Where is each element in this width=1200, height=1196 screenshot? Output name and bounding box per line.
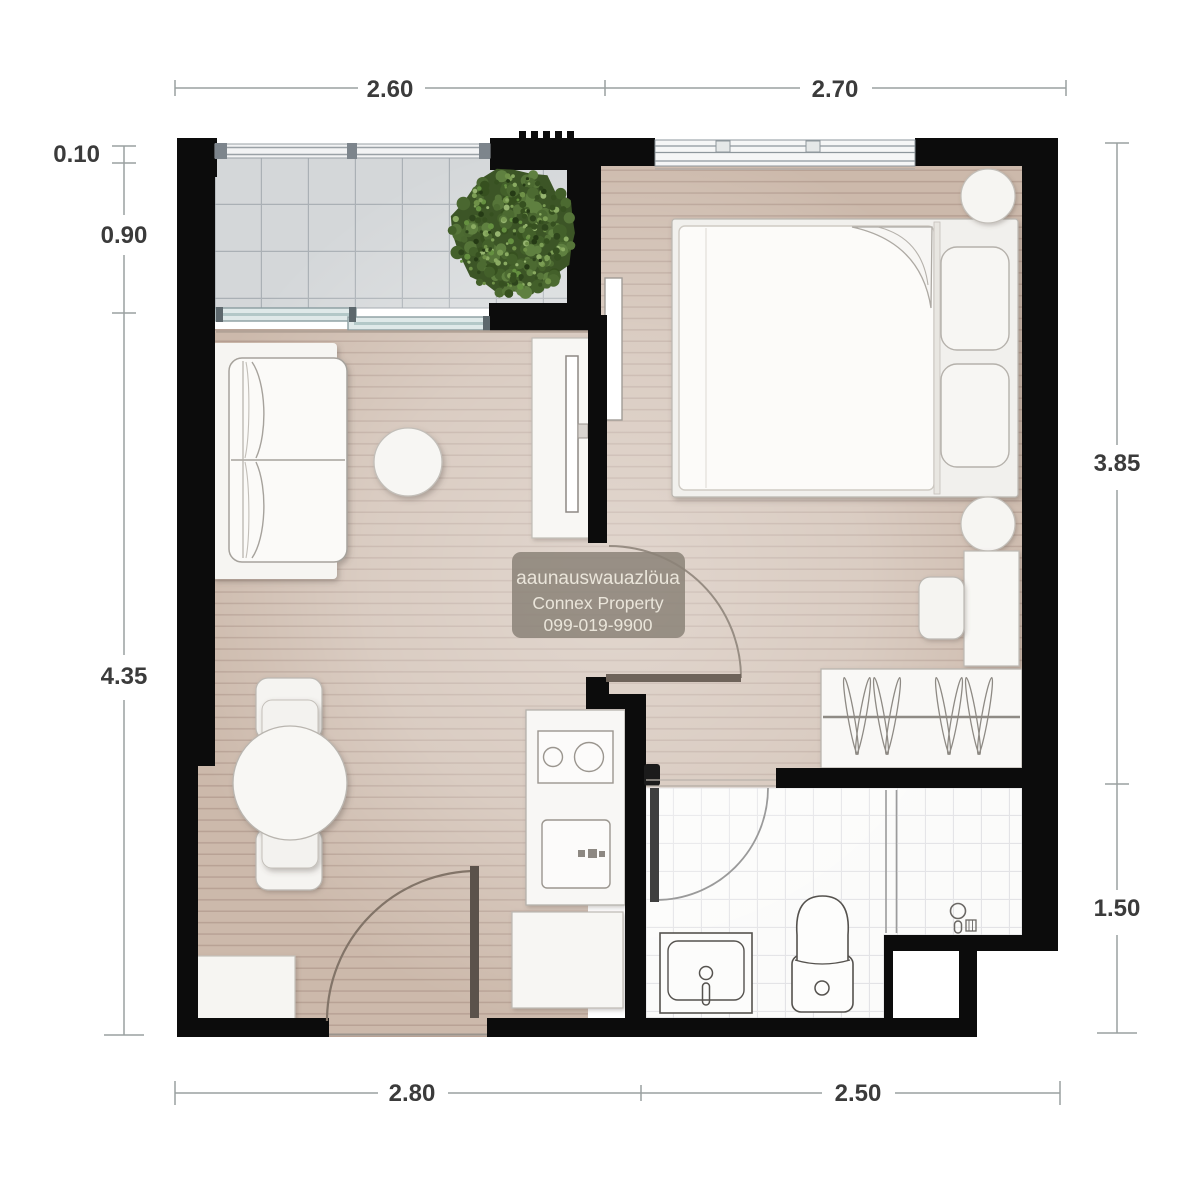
svg-text:4.35: 4.35: [101, 663, 148, 690]
svg-text:aaunauswauazlöua: aaunauswauazlöua: [516, 568, 680, 589]
svg-text:0.90: 0.90: [101, 222, 148, 249]
svg-text:2.60: 2.60: [367, 76, 414, 103]
svg-text:Connex Property: Connex Property: [532, 593, 664, 613]
svg-text:2.80: 2.80: [389, 1080, 436, 1107]
svg-text:2.70: 2.70: [812, 76, 859, 103]
svg-text:1.50: 1.50: [1094, 895, 1141, 922]
svg-text:3.85: 3.85: [1094, 450, 1141, 477]
svg-text:0.10: 0.10: [53, 141, 100, 168]
svg-text:099-019-9900: 099-019-9900: [544, 615, 653, 635]
svg-text:2.50: 2.50: [835, 1080, 882, 1107]
